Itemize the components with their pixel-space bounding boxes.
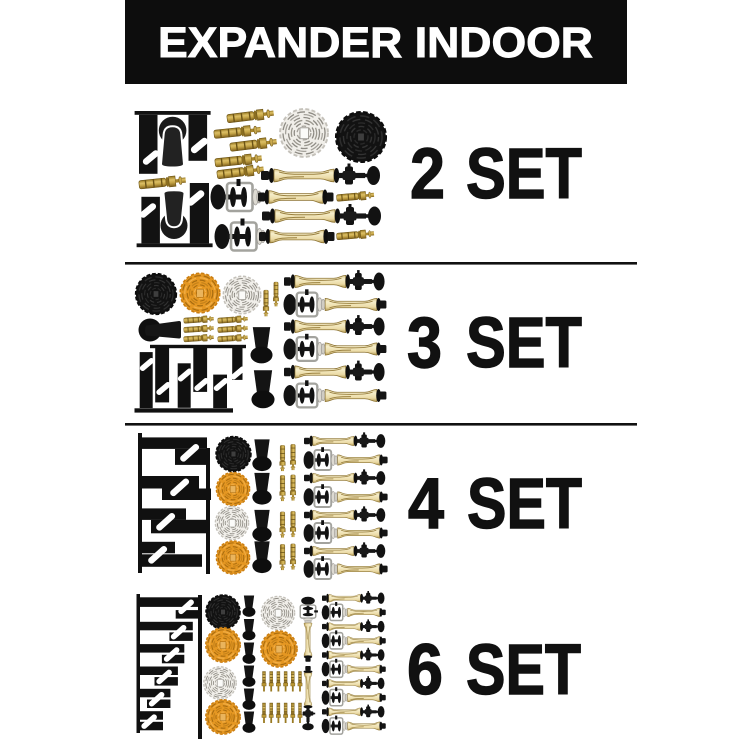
svg-text:4: 4 [408, 464, 444, 544]
svg-text:2: 2 [410, 134, 445, 214]
svg-text:SET: SET [467, 464, 582, 544]
svg-text:SET: SET [466, 134, 582, 214]
svg-text:3: 3 [407, 303, 442, 383]
svg-text:EXPANDER INDOOR: EXPANDER INDOOR [158, 20, 593, 67]
svg-text:SET: SET [466, 303, 582, 383]
svg-text:SET: SET [466, 630, 581, 710]
svg-text:6: 6 [407, 630, 443, 710]
